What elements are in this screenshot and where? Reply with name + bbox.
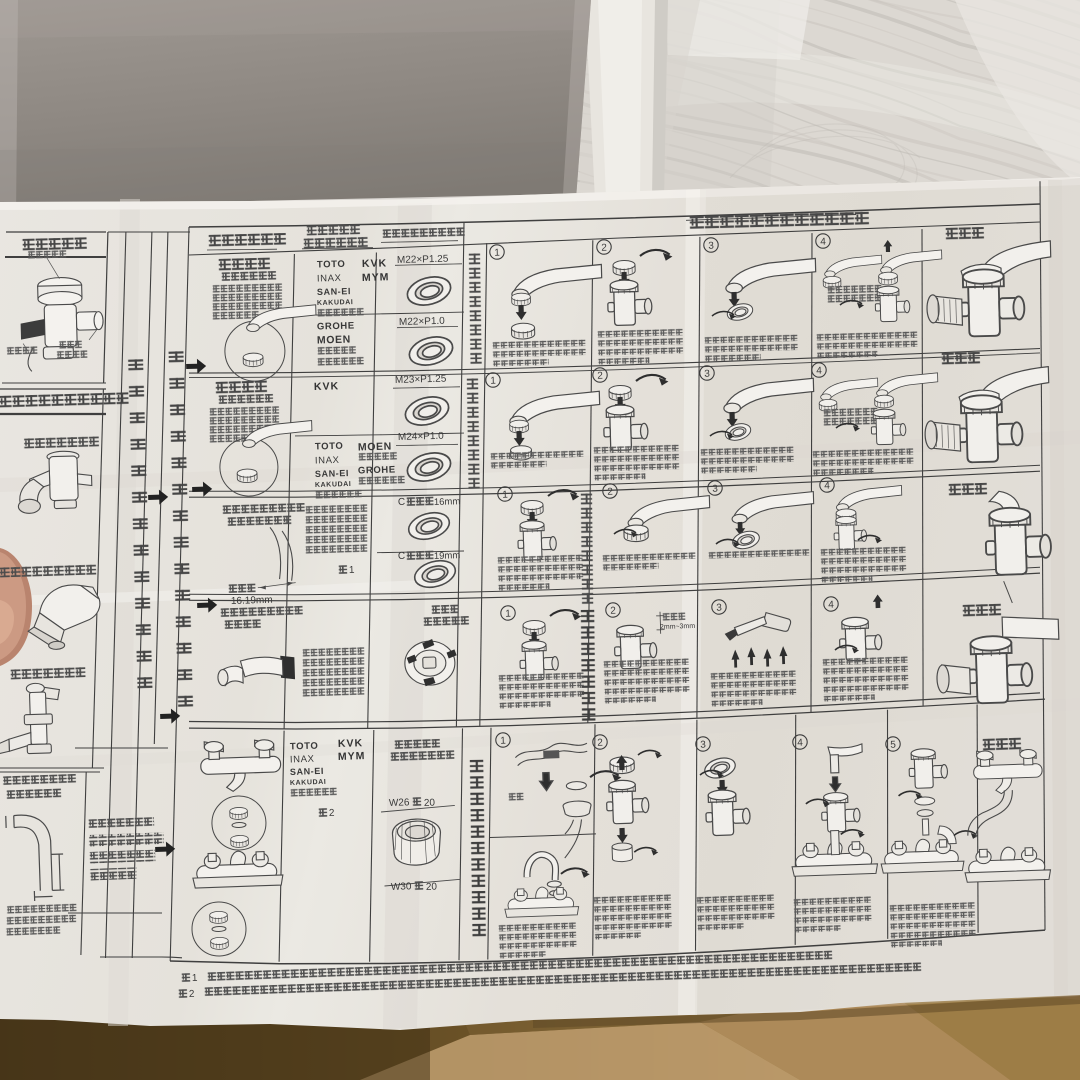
svg-text:MOEN: MOEN	[317, 334, 351, 347]
svg-text:TOTO: TOTO	[290, 741, 319, 753]
svg-text:INAX: INAX	[315, 455, 340, 467]
svg-text:1: 1	[500, 736, 506, 747]
svg-text:16.19mm: 16.19mm	[231, 595, 273, 607]
svg-text:3: 3	[700, 740, 706, 751]
svg-text:2: 2	[329, 808, 335, 819]
svg-text:GROHE: GROHE	[317, 320, 355, 332]
svg-text:3: 3	[716, 603, 722, 614]
svg-text:M24×P1.0: M24×P1.0	[398, 431, 445, 443]
svg-text:W26: W26	[389, 797, 410, 809]
svg-text:2: 2	[601, 243, 607, 254]
svg-text:1: 1	[494, 248, 500, 259]
svg-text:KAKUDAI: KAKUDAI	[317, 299, 354, 307]
svg-text:KVK: KVK	[338, 737, 364, 750]
svg-text:MYM: MYM	[362, 271, 390, 284]
svg-text:GROHE: GROHE	[358, 464, 396, 476]
svg-text:2: 2	[597, 371, 603, 382]
svg-text:2: 2	[607, 487, 613, 498]
svg-text:1: 1	[505, 609, 511, 620]
svg-text:KVK: KVK	[362, 257, 387, 270]
svg-text:4: 4	[797, 738, 803, 749]
svg-text:2: 2	[597, 738, 603, 749]
svg-text:16mm: 16mm	[434, 496, 461, 508]
svg-text:2: 2	[610, 606, 616, 617]
svg-text:KAKUDAI: KAKUDAI	[290, 779, 327, 787]
svg-text:SAN-EI: SAN-EI	[317, 286, 351, 297]
svg-text:KVK: KVK	[314, 380, 339, 393]
svg-text:W30: W30	[391, 881, 412, 893]
svg-text:MYM: MYM	[338, 750, 366, 763]
svg-text:4: 4	[816, 366, 822, 377]
svg-text:1: 1	[490, 376, 496, 387]
svg-text:INAX: INAX	[317, 273, 342, 285]
svg-text:3: 3	[712, 484, 718, 495]
svg-text:1: 1	[349, 565, 355, 576]
svg-text:TOTO: TOTO	[315, 441, 344, 453]
svg-text:2: 2	[189, 989, 195, 1000]
svg-text:4: 4	[820, 237, 826, 248]
svg-text:M22×P1.0: M22×P1.0	[399, 316, 446, 328]
svg-text:5: 5	[890, 740, 896, 751]
svg-text:4: 4	[824, 481, 830, 492]
svg-text:C: C	[398, 551, 406, 562]
svg-text:2mm~3mm: 2mm~3mm	[660, 623, 696, 631]
svg-text:KAKUDAI: KAKUDAI	[315, 481, 352, 489]
svg-text:C: C	[398, 497, 406, 508]
svg-text:SAN-EI: SAN-EI	[315, 468, 349, 479]
svg-text:3: 3	[704, 369, 710, 380]
svg-text:3: 3	[708, 241, 714, 252]
svg-text:M23×P1.25: M23×P1.25	[395, 374, 447, 386]
svg-text:TOTO: TOTO	[317, 259, 346, 271]
svg-text:1: 1	[502, 490, 508, 501]
svg-text:INAX: INAX	[290, 754, 315, 766]
svg-text:20: 20	[426, 882, 438, 893]
svg-text:4: 4	[828, 600, 834, 611]
svg-text:SAN-EI: SAN-EI	[290, 766, 324, 777]
svg-text:1: 1	[192, 973, 198, 984]
